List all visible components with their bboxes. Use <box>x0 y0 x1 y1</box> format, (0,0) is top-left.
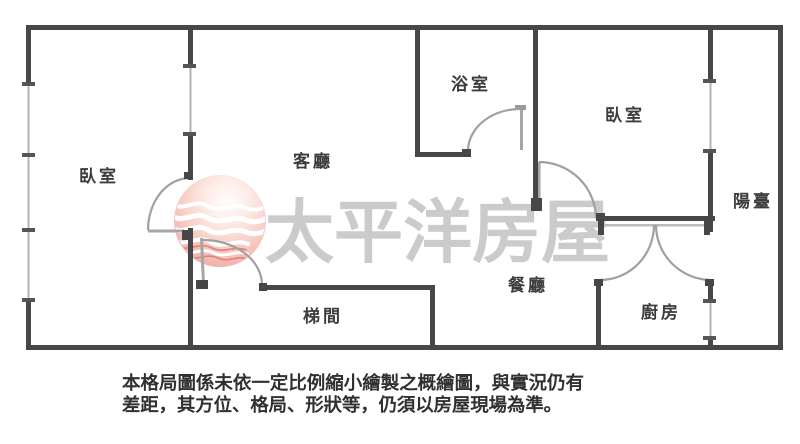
tick-partition-2 <box>183 132 196 136</box>
wall-outer-top <box>26 25 783 30</box>
label-living-room: 客廳 <box>292 151 333 171</box>
wall-outer-right <box>778 25 783 350</box>
hinge-kitchen-door-right <box>704 221 710 235</box>
floor-plan-canvas: 太平洋房屋 <box>0 0 800 444</box>
label-bedroom-right: 臥室 <box>605 105 645 125</box>
tick-left-1 <box>22 82 35 86</box>
hinge-kitchen-door-left <box>598 221 604 235</box>
wall-bedroom-right-right-upper <box>708 25 713 82</box>
window-partition-wall <box>190 68 192 135</box>
door-leaf-bedroom-left <box>148 230 184 233</box>
wall-bathroom-left <box>415 25 420 157</box>
label-dining-room: 餐廳 <box>508 275 548 295</box>
cap-kitchen-right-wall <box>705 279 714 286</box>
wall-outer-bottom <box>26 345 783 350</box>
tick-left-3 <box>22 228 35 232</box>
wall-stairwell-right <box>430 285 435 348</box>
wall-outer-left-lower <box>26 300 31 350</box>
watermark-text: 太平洋房屋 <box>265 192 610 273</box>
pacific-house-sphere-logo <box>172 175 268 267</box>
wall-partition-bottom <box>188 228 193 348</box>
label-bathroom: 浴室 <box>451 74 491 94</box>
cap-bedroom-right-wall <box>596 213 605 221</box>
wall-bedroom-right-right-lower <box>708 152 713 218</box>
tick-left-4 <box>22 298 35 302</box>
tick-left-2 <box>22 153 35 157</box>
label-stairwell: 梯間 <box>303 306 343 326</box>
cap-bathroom-wall <box>462 149 471 157</box>
wall-stairwell-top <box>263 285 433 290</box>
cap-partition-mid <box>184 172 193 179</box>
floor-plan-image: 太平洋房屋 <box>0 0 800 444</box>
wall-outer-left-upper <box>26 25 31 85</box>
label-balcony: 陽臺 <box>733 191 773 211</box>
door-leaf-stairwell <box>202 238 204 284</box>
cap-stairwell-wall <box>259 283 267 291</box>
door-arc-kitchen-right <box>656 225 710 280</box>
disclaimer-line-1: 本格局圖係未依一定比例縮小繪製之概繪圖，與實況仍有 <box>122 372 584 393</box>
label-kitchen: 廚房 <box>641 302 681 322</box>
hinge-bedroom-right-door <box>531 198 542 211</box>
walls <box>26 25 783 350</box>
wall-partition-top <box>188 25 193 68</box>
wall-bedroom-right-left <box>533 25 538 203</box>
wall-kitchen-left <box>596 281 601 348</box>
tick-bedroom-right-2 <box>703 149 716 153</box>
hinge-stairwell-door <box>196 280 208 289</box>
tick-kitchen-1 <box>703 299 716 303</box>
disclaimer-line-2: 差距，其方位、格局、形狀等，仍須以房屋現場為準。 <box>122 394 562 415</box>
door-leaf-bathroom <box>520 108 523 150</box>
tick-partition-1 <box>183 64 196 68</box>
tick-kitchen-2 <box>703 336 716 340</box>
label-bedroom-left: 臥室 <box>79 166 119 186</box>
disclaimer: 本格局圖係未依一定比例縮小繪製之概繪圖，與實況仍有 差距，其方位、格局、形狀等，… <box>122 372 584 415</box>
window-kitchen-right-wall <box>710 302 712 338</box>
tick-bedroom-right-1 <box>703 79 716 83</box>
wall-bedroom-right-bottom <box>598 216 715 221</box>
cap-kitchen-left-wall <box>594 279 603 286</box>
hinge-bedroom-left-door <box>182 230 192 240</box>
wall-bathroom-bottom <box>415 152 468 157</box>
window-left-wall <box>28 85 30 300</box>
window-bedroom-right-wall <box>710 82 712 152</box>
door-arc-bathroom <box>468 109 520 150</box>
